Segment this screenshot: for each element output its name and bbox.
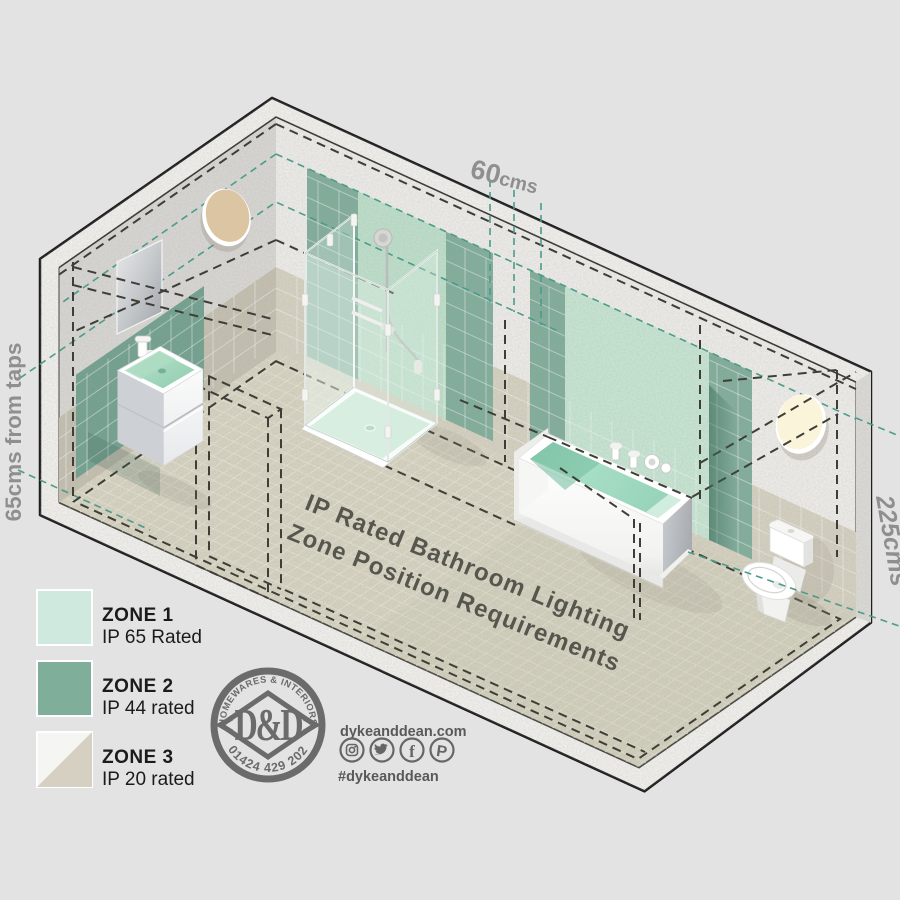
svg-text:ZONE 2: ZONE 2	[102, 676, 174, 697]
svg-text:D&D: D&D	[234, 699, 302, 750]
svg-text:#dykeanddean: #dykeanddean	[338, 769, 439, 785]
svg-text:IP 20 rated: IP 20 rated	[102, 769, 195, 790]
svg-text:65cms from taps: 65cms from taps	[1, 343, 26, 522]
svg-text:IP 44 rated: IP 44 rated	[102, 698, 195, 719]
svg-text:IP 65 Rated: IP 65 Rated	[102, 627, 202, 648]
svg-text:f: f	[409, 742, 415, 761]
svg-text:dykeanddean.com: dykeanddean.com	[340, 724, 467, 740]
svg-text:ZONE 3: ZONE 3	[102, 747, 174, 768]
svg-text:ZONE 1: ZONE 1	[102, 605, 174, 626]
